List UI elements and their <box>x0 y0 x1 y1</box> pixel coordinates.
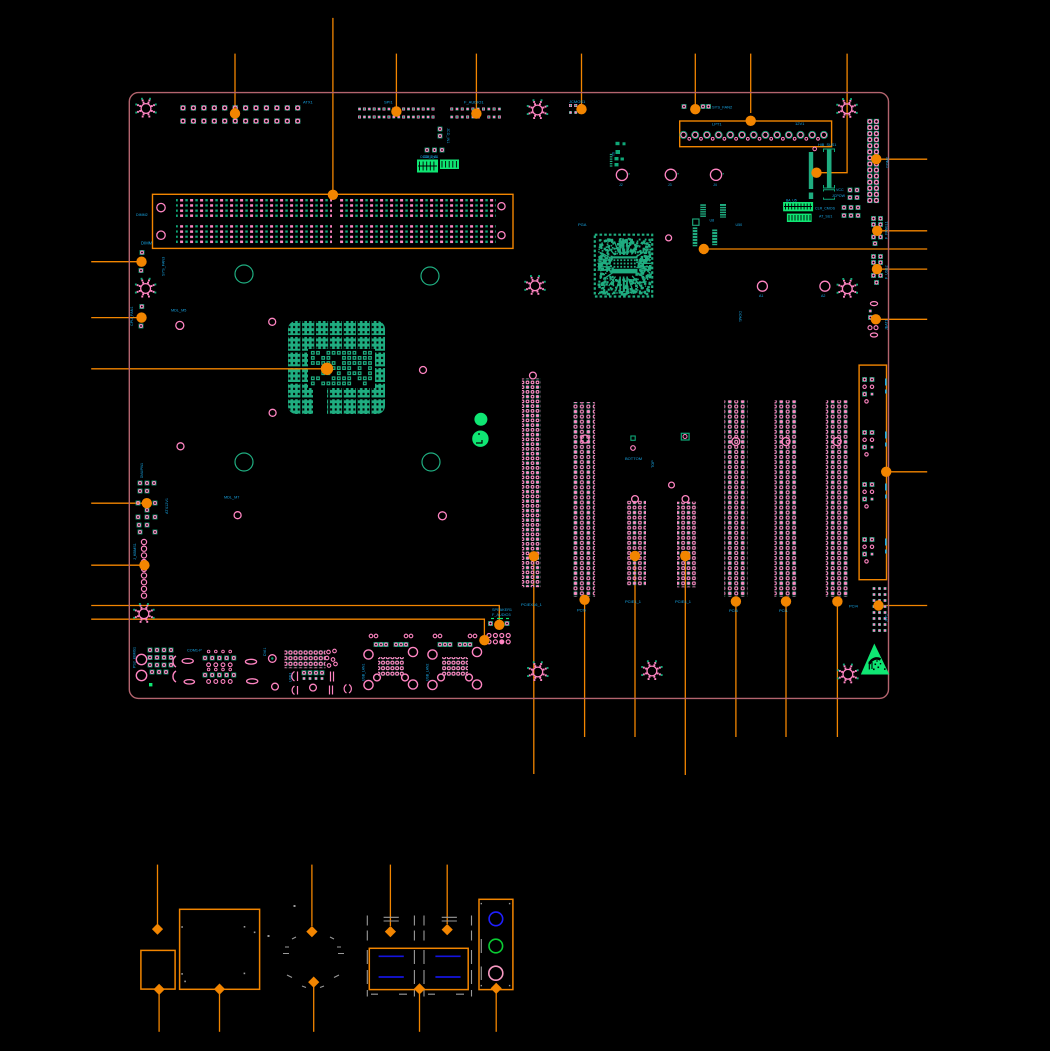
svg-text:JCD_IN1: JCD_IN1 <box>446 128 450 143</box>
svg-text:JCPOW: JCPOW <box>832 194 846 198</box>
svg-text:TOP: TOP <box>651 460 655 468</box>
svg-text:DIMM: DIMM <box>141 241 153 246</box>
svg-text:U8: U8 <box>710 219 715 223</box>
svg-text:COM1-P: COM1-P <box>187 649 202 653</box>
svg-text:ATX1: ATX1 <box>303 100 313 105</box>
svg-text:JBAT1: JBAT1 <box>885 319 889 330</box>
svg-text:JFP1: JFP1 <box>885 614 889 622</box>
svg-text:COM2: COM2 <box>886 157 890 168</box>
svg-text:AT_SU1: AT_SU1 <box>819 215 832 219</box>
svg-text:SYS_FAN2: SYS_FAN2 <box>712 105 733 110</box>
svg-text:DOM1: DOM1 <box>738 311 742 322</box>
svg-text:ATX12V1: ATX12V1 <box>165 498 169 514</box>
svg-text:SPI1: SPI1 <box>384 100 393 105</box>
svg-text:PCI5: PCI5 <box>577 608 587 613</box>
svg-text:U50: U50 <box>736 223 743 227</box>
svg-text:PCI4: PCI4 <box>849 604 859 609</box>
svg-text:PS2_KBMS1: PS2_KBMS1 <box>133 647 137 668</box>
svg-text:PCIEX16_1: PCIEX16_1 <box>521 602 543 607</box>
svg-text:PGA: PGA <box>578 222 587 227</box>
svg-text:LPT1: LPT1 <box>712 122 722 127</box>
svg-text:SYS_FAN3: SYS_FAN3 <box>162 257 166 276</box>
svg-text:DMA/PW1: DMA/PW1 <box>140 463 144 478</box>
svg-text:USB_LAN1: USB_LAN1 <box>362 664 366 681</box>
svg-text:J_KBMS1: J_KBMS1 <box>133 543 137 560</box>
svg-text:A2: A2 <box>821 294 825 298</box>
svg-text:J3: J3 <box>668 183 672 187</box>
svg-text:VCC: VCC <box>836 188 844 192</box>
svg-text:DVI1: DVI1 <box>263 648 267 656</box>
svg-text:MDL_M7: MDL_M7 <box>224 496 239 500</box>
svg-text:A1: A1 <box>759 294 763 298</box>
svg-text:MDL_M5: MDL_M5 <box>171 309 186 313</box>
svg-text:PCIE1_1: PCIE1_1 <box>625 599 642 604</box>
svg-text:PCIE4_1: PCIE4_1 <box>675 599 692 604</box>
svg-text:HIB_SUS1: HIB_SUS1 <box>818 143 836 147</box>
svg-text:PCI6: PCI6 <box>729 608 739 613</box>
svg-text:PCI1: PCI1 <box>779 608 789 613</box>
svg-text:CLR_CMOS: CLR_CMOS <box>815 207 836 211</box>
svg-text:F_AUDIO3: F_AUDIO3 <box>492 613 511 617</box>
svg-text:CODEC_A1: CODEC_A1 <box>420 155 438 159</box>
svg-text:F_USB2: F_USB2 <box>885 265 889 279</box>
svg-text:S1: S1 <box>611 152 615 156</box>
svg-text:J4: J4 <box>713 183 717 187</box>
svg-text:BA_U5: BA_U5 <box>786 199 797 203</box>
svg-text:SPEAKER1: SPEAKER1 <box>492 608 512 612</box>
svg-text:F_AUDIO1: F_AUDIO1 <box>464 100 484 105</box>
svg-text:F_PANEL1: F_PANEL1 <box>885 221 889 239</box>
svg-text:BOTTOM: BOTTOM <box>625 456 642 461</box>
svg-text:DIMM2: DIMM2 <box>136 213 148 217</box>
svg-text:USB_LAN2: USB_LAN2 <box>426 664 430 681</box>
svg-text:JCMOS1: JCMOS1 <box>569 99 586 104</box>
svg-text:12V1: 12V1 <box>795 121 805 126</box>
svg-text:CPU_FAN1: CPU_FAN1 <box>130 306 134 326</box>
svg-text:J2: J2 <box>619 183 623 187</box>
